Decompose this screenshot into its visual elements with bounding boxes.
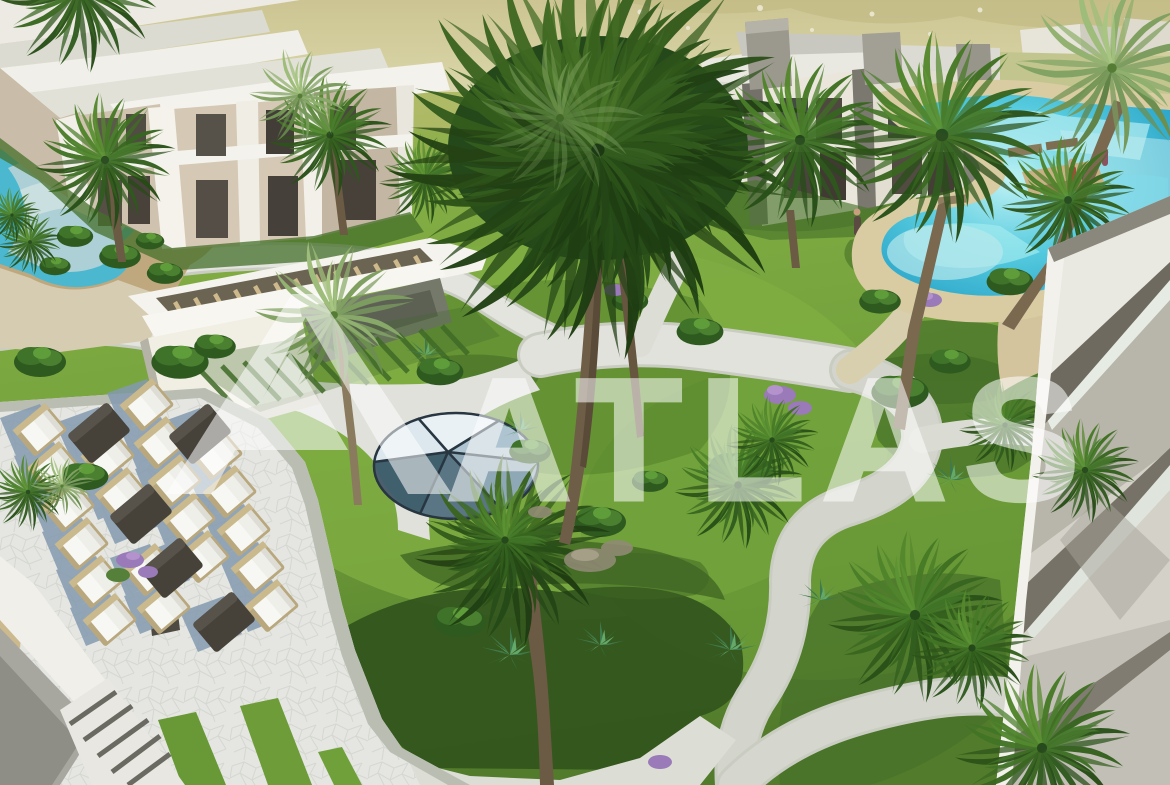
svg-text:ATLAS: ATLAS — [447, 344, 1083, 536]
